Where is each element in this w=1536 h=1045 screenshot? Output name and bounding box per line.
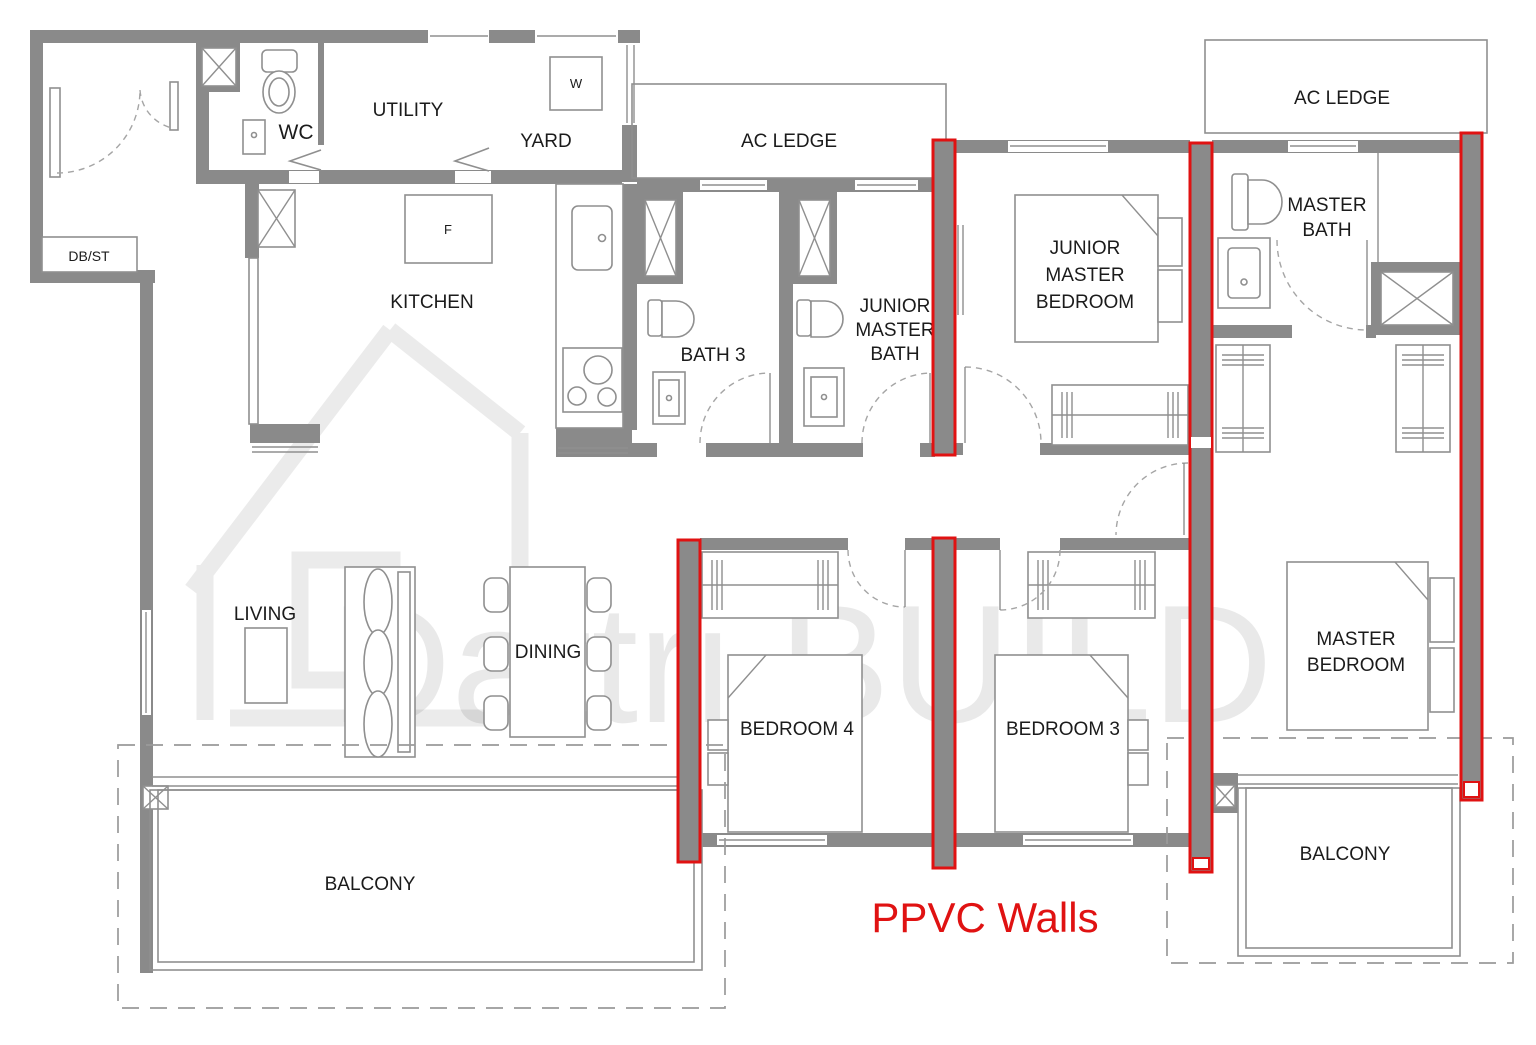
ppvc-wall-master-west (1190, 143, 1212, 872)
balcony-left (118, 745, 725, 1008)
shaft-wc (258, 190, 295, 247)
junior-master-bedroom-label-3: BEDROOM (1036, 292, 1134, 313)
bedroom4-label: BEDROOM 4 (740, 719, 854, 740)
shaft-entry (202, 48, 236, 86)
ppvc-notch-east (1464, 782, 1479, 797)
bedroom3-wardrobe (1028, 552, 1155, 618)
junior-master-wardrobe (1052, 385, 1188, 445)
master-wardrobe-left (1216, 345, 1270, 452)
balcony-left-label: BALCONY (325, 874, 416, 895)
wc-toilet (262, 50, 297, 113)
bath3-label: BATH 3 (680, 345, 745, 366)
utility-bifold-door (455, 148, 489, 171)
shaft-master-bath (1381, 272, 1453, 325)
utility-label: UTILITY (373, 100, 444, 121)
shaft-junior-master-bath (799, 200, 830, 276)
washer-label: W (570, 76, 583, 91)
db-st-label: DB/ST (68, 248, 110, 264)
ppvc-wall-bedroom4-west (678, 540, 700, 862)
master-wardrobe-right (1396, 345, 1450, 452)
balcony-right-label: BALCONY (1300, 844, 1391, 865)
master-bedroom-label-2: BEDROOM (1307, 655, 1405, 676)
master-bath-label-1: MASTER (1287, 195, 1366, 216)
junior-master-bath-basin (804, 368, 844, 426)
ac-ledge-top-label: AC LEDGE (741, 131, 837, 152)
bath3-toilet (648, 300, 694, 337)
ppvc-wall-east (1461, 133, 1482, 800)
junior-master-bath-door (862, 373, 930, 443)
fridge-label: F (444, 222, 452, 237)
master-bedroom-label-1: MASTER (1316, 629, 1395, 650)
ac-ledge-right-outline (1205, 40, 1487, 133)
floor-plan-svg: Dattri.BUILD (0, 0, 1536, 1045)
wc-label: WC (279, 121, 314, 144)
junior-master-bedroom-label-2: MASTER (1045, 265, 1124, 286)
living-label: LIVING (234, 604, 296, 625)
junior-master-bedroom-door (965, 367, 1041, 443)
bedroom3-bed (995, 655, 1148, 832)
master-bath-vanity (1218, 238, 1270, 308)
shaft-balcony-right (1215, 785, 1235, 807)
bedroom4-wardrobe (702, 552, 838, 618)
ppvc-wall-center-top (933, 140, 955, 455)
junior-master-bedroom-label-1: JUNIOR (1050, 238, 1121, 259)
ac-ledge-right-label: AC LEDGE (1294, 88, 1390, 109)
wc-basin (243, 120, 265, 154)
bedroom3-label: BEDROOM 3 (1006, 719, 1120, 740)
kitchen-door (249, 258, 258, 424)
bedroom4-bed (708, 655, 862, 832)
ppvc-notch-master-west (1193, 858, 1209, 869)
junior-master-bath-label-1: JUNIOR (860, 296, 931, 317)
master-bath-label-2: BATH (1302, 220, 1351, 241)
coffee-table (245, 628, 287, 703)
dining-label: DINING (515, 642, 582, 663)
ppvc-wall-center-bottom (933, 538, 955, 868)
wc-bifold-door (290, 150, 321, 170)
junior-master-bath-label-2: MASTER (855, 320, 934, 341)
shaft-bath3 (645, 200, 676, 276)
ppvc-door-recess (1191, 437, 1211, 448)
sofa (345, 567, 415, 757)
floor-plan: Dattri.BUILD (0, 0, 1536, 1045)
kitchen-label: KITCHEN (390, 292, 473, 313)
bath3-basin (653, 372, 685, 424)
junior-master-bath-label-3: BATH (870, 344, 919, 365)
bath3-door (700, 373, 770, 443)
junior-master-bath-toilet (797, 300, 843, 337)
yard-label: YARD (520, 131, 571, 152)
master-bath-toilet (1232, 174, 1282, 230)
entry-door (50, 82, 178, 177)
master-bedroom-door (1116, 463, 1188, 535)
master-bath-door (1277, 240, 1367, 330)
ppvc-walls-label: PPVC Walls (871, 894, 1098, 941)
